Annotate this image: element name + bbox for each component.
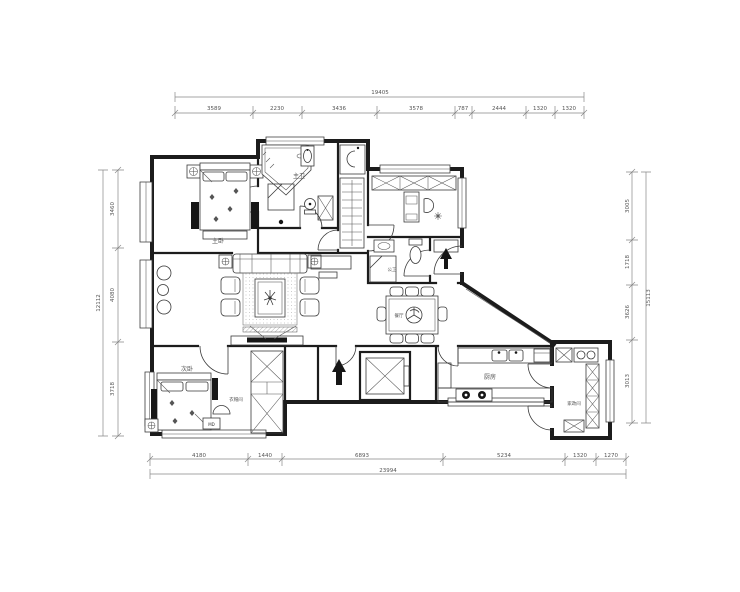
- headboard: [157, 373, 211, 380]
- dim-text-bottom-overall: 23994: [379, 468, 397, 474]
- dim-text: 1320: [573, 453, 587, 459]
- living-room: [157, 254, 351, 345]
- room-label-dining: 餐厅: [395, 312, 404, 319]
- sink-icon: [374, 240, 394, 252]
- dim-line-top-segments: [172, 106, 587, 119]
- dim-text: 4080: [110, 288, 116, 302]
- chair-icon: [390, 287, 403, 296]
- lazy-susan-icon: [406, 307, 422, 323]
- armchair-icon: [300, 277, 319, 294]
- room-label-utility: 家政间: [567, 400, 581, 407]
- chair-icon: [421, 334, 434, 343]
- vanity-sink-icon: [301, 146, 314, 166]
- dim-text: 3013: [625, 374, 631, 388]
- dim-text-top-overall: 19405: [371, 90, 389, 96]
- chair-icon: [438, 307, 447, 321]
- bedside-runner: [191, 202, 199, 229]
- walk-in-closet: [340, 178, 364, 248]
- room-label-guest-bath: 公卫: [388, 267, 397, 273]
- entry-arrow-icon: [440, 248, 452, 269]
- elevator-shaft-icon: [366, 358, 404, 394]
- dim-text: 6893: [355, 453, 369, 459]
- vanity-counter: [340, 145, 365, 174]
- ceiling-lamp-icon: [434, 212, 442, 220]
- study: [372, 176, 456, 222]
- dimension-chain-bottom: 4180 1440 6893 5234 1320 1270 23994: [147, 453, 629, 479]
- side-table-icon: [158, 285, 169, 296]
- dim-text-right-overall: 15113: [646, 289, 652, 307]
- wardrobe-icon: [372, 176, 456, 190]
- vanity-nook: [340, 145, 365, 174]
- duct-shaft-icon: [318, 196, 333, 220]
- chair-icon: [406, 334, 419, 343]
- double-bed-icon: [200, 163, 250, 230]
- dim-text: 3436: [332, 106, 346, 112]
- room-label-kitchen: 厨房: [484, 373, 496, 381]
- toilet-icon: [409, 239, 422, 264]
- dim-line-bottom-segments: [147, 453, 629, 466]
- entry-hall: [332, 359, 346, 385]
- dim-text: 3718: [110, 382, 116, 396]
- dim-text: 5234: [497, 453, 511, 459]
- elevator-door: [404, 366, 409, 386]
- pouf-chair-icon: [213, 406, 230, 415]
- kitchen-counter-side: [438, 363, 451, 388]
- washer-icon: [574, 348, 598, 362]
- bay-window-seating: [157, 266, 171, 314]
- room-label-master-bedroom: 主卧: [212, 237, 224, 245]
- guest-bathroom: 公卫: [370, 239, 422, 282]
- dim-text: 787: [458, 106, 469, 112]
- dimension-chain-right: 3005 1718 3626 3013 15113: [625, 169, 652, 426]
- double-sink-icon: [492, 350, 523, 361]
- dim-text: 2230: [270, 106, 284, 112]
- dim-text: 3626: [625, 305, 631, 319]
- clothes-hangers-icon: [342, 180, 362, 246]
- floor-plan-drawing: 主卧 主卫: [0, 0, 740, 592]
- bedside-runner: [212, 378, 218, 400]
- stove-icon: [456, 389, 492, 401]
- floor-plan-canvas: 主卧 主卫: [0, 0, 740, 592]
- kitchen: 厨房: [438, 348, 552, 402]
- dim-text: 3589: [207, 106, 221, 112]
- chair-icon: [421, 287, 434, 296]
- second-bedroom: MD 次卧 衣帽间: [145, 351, 283, 433]
- wardrobe-icon: [251, 351, 283, 433]
- dim-text: 4180: [192, 453, 206, 459]
- sofa-side-table-icon: [219, 255, 232, 268]
- lounge-chair-icon: [157, 266, 171, 280]
- duct-box-icon: [556, 348, 572, 362]
- master-bedroom: 主卧: [187, 163, 263, 245]
- coffee-table: [255, 279, 285, 317]
- dim-text: 1320: [533, 106, 547, 112]
- md-cabinet-label: MD: [208, 422, 215, 427]
- room-label-master-bath: 主卫: [293, 172, 305, 180]
- corner-table: [145, 419, 158, 432]
- dim-text: 3578: [409, 106, 423, 112]
- desk-chair-icon: [424, 199, 434, 213]
- armchair-icon: [221, 299, 240, 316]
- utility-room: 家政间: [556, 348, 599, 432]
- armchair-icon: [300, 299, 319, 316]
- fridge-icon: [534, 349, 550, 362]
- dimension-chain-left: 3460 4080 3718 12112: [96, 167, 124, 439]
- table-lamp-icon: [253, 168, 261, 176]
- round-basin-icon: [347, 151, 355, 167]
- chair-icon: [390, 334, 403, 343]
- pillow: [161, 382, 183, 391]
- elevator: [360, 352, 410, 400]
- faucet-icon: [357, 147, 359, 149]
- tv-icon: [247, 338, 287, 343]
- rug-fringe: [243, 327, 297, 332]
- master-bathroom: 主卫: [262, 145, 333, 224]
- toilet-icon: [305, 199, 316, 215]
- dim-text: 3005: [625, 199, 631, 213]
- room-label-closet: 衣帽间: [229, 396, 243, 403]
- chair-icon: [377, 307, 386, 321]
- dim-text: 2444: [492, 106, 506, 112]
- lounge-chair-icon: [157, 300, 171, 314]
- dim-text: 1718: [625, 255, 631, 269]
- sofa-icon: [233, 254, 307, 273]
- bedside-runner: [151, 389, 157, 423]
- floor-drain-icon: [279, 220, 283, 224]
- dining-room: 餐厅: [377, 287, 447, 343]
- dim-text: 3460: [110, 202, 116, 216]
- chair-icon: [406, 287, 419, 296]
- entry-arrow-icon: [332, 359, 346, 385]
- headboard: [200, 163, 250, 170]
- room-label-second-bedroom: 次卧: [181, 365, 193, 373]
- dim-text: 1440: [258, 453, 272, 459]
- dim-text: 1270: [604, 453, 618, 459]
- dimension-chain-top: 19405 3589 2230 3436 3578 787 2444 1320 …: [172, 90, 587, 119]
- pillow: [186, 382, 208, 391]
- dim-text-left-overall: 12112: [96, 294, 102, 312]
- bedside-runner: [251, 202, 259, 229]
- sofa-side-table-icon: [308, 255, 321, 268]
- entry-foyer: [434, 240, 458, 269]
- table-lamp-icon: [190, 168, 198, 176]
- md-cabinet: MD: [203, 418, 220, 429]
- bed-end-bench: [203, 231, 247, 239]
- pillow: [226, 172, 247, 181]
- dim-text: 1320: [562, 106, 576, 112]
- storage-cabinets-icon: [564, 364, 599, 432]
- armchair-icon: [221, 277, 240, 294]
